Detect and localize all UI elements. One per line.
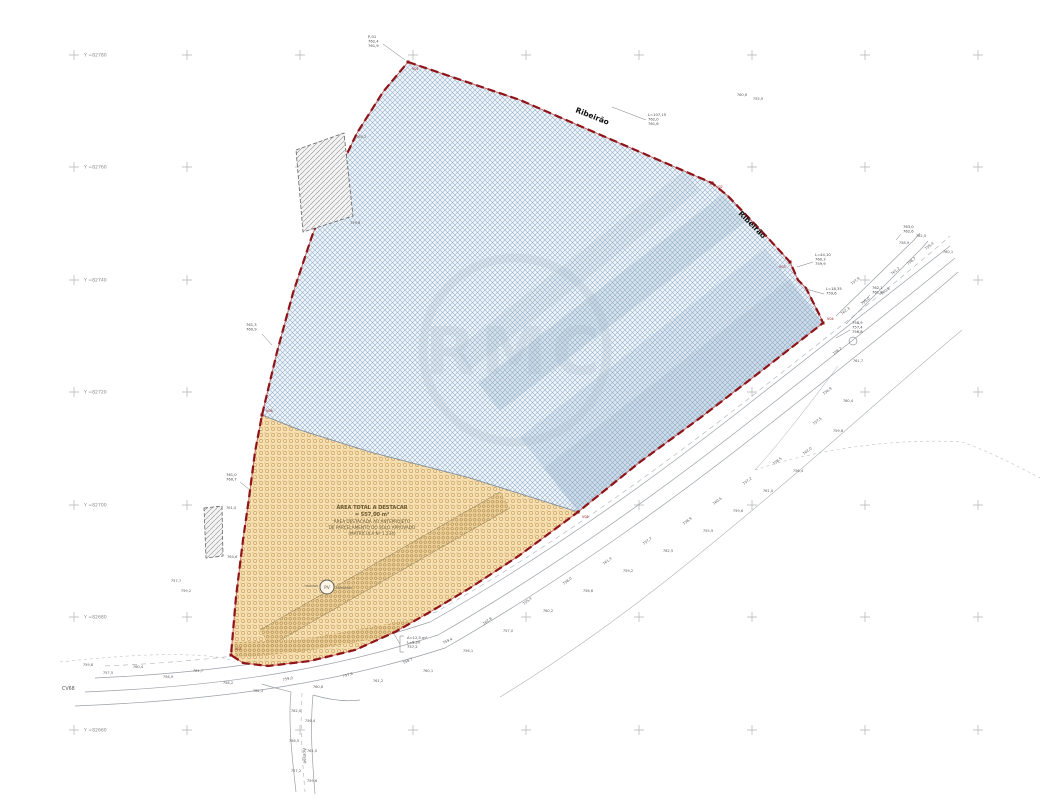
spot-elevation: 760,1 xyxy=(423,669,433,673)
spot-elevation: 758,7 xyxy=(402,657,413,665)
spot-elevation: 762,8 xyxy=(482,616,493,626)
spot-elevation: 760,4 xyxy=(843,399,854,403)
grid-cross xyxy=(69,500,79,510)
spot-elevation: 756,9 xyxy=(163,675,174,679)
grid-y-label: Y =82700 xyxy=(83,503,107,509)
leader-annotation-line: L=8,20 xyxy=(407,641,421,645)
grid-cross xyxy=(860,162,870,172)
spot-elevation: 757,2 xyxy=(291,769,301,773)
site-plan-drawing: Y =82780Y =82760Y =82740Y =82720Y =82700… xyxy=(0,0,1056,800)
spot-elevation: 758,5 xyxy=(772,456,783,465)
spot-elevation: 757,2 xyxy=(742,476,753,485)
grid-cross xyxy=(973,725,983,735)
grid-cross xyxy=(747,50,757,60)
leader-annotation-line: 760,3 xyxy=(815,258,826,262)
vertex-label: V04 xyxy=(827,317,834,321)
leader-annotation-line: 760,9 xyxy=(246,328,257,332)
spot-elevation: 756,4 xyxy=(305,719,316,723)
grid-cross xyxy=(634,612,644,622)
grid-y-label: Y =82720 xyxy=(83,390,107,396)
building-label: 761,0 xyxy=(226,506,237,510)
leader-annotation-line: 760,7 xyxy=(226,478,237,482)
spot-elevation: 760,8 xyxy=(313,685,324,689)
leader-annotation-line: 757,4 xyxy=(852,326,863,330)
grid-cross xyxy=(182,162,192,172)
spot-elevation: 755,9 xyxy=(703,529,714,533)
grid-cross xyxy=(182,500,192,510)
spot-elevation: 761,2 xyxy=(373,679,383,683)
leader-annotation-line: 758,9 xyxy=(852,321,863,325)
spot-elevation: 757,9 xyxy=(342,672,354,679)
spot-elevation: 757,7 xyxy=(642,536,653,545)
grid-cross xyxy=(747,612,757,622)
leader-annotation-line: A=12,5 m² xyxy=(407,636,428,640)
grid-y-label: Y =82740 xyxy=(83,278,107,284)
spot-elevation: 762,3 xyxy=(253,689,263,693)
spot-elevation: 756,4 xyxy=(793,469,804,473)
vertex-marker xyxy=(711,182,714,185)
leader-annotation-line: L=44,10 xyxy=(815,253,831,257)
grid-cross xyxy=(182,50,192,60)
grid-cross xyxy=(973,275,983,285)
grid-cross xyxy=(69,275,79,285)
access-road-centerline xyxy=(301,693,305,792)
spot-elevation: 758,5 xyxy=(289,739,299,743)
vertex-label: V05 xyxy=(582,515,589,519)
spot-elevation: 760,6 xyxy=(737,93,748,97)
spot-elevation: 755,9 xyxy=(753,97,764,101)
spot-elevation: 758,9 xyxy=(682,516,693,526)
leader-annotation-line: 759,6 xyxy=(826,292,837,296)
building-footprint xyxy=(296,133,353,232)
vertex-label: V07 xyxy=(235,647,242,651)
spot-elevation: 761,0 xyxy=(763,489,774,493)
grid-cross xyxy=(69,725,79,735)
spot-elevation: 756,6 xyxy=(583,589,594,593)
grid-y-label: Y =82660 xyxy=(83,728,107,734)
grid-cross xyxy=(521,50,531,60)
grid-cross xyxy=(182,387,192,397)
leader-annotation-line: 761,0 xyxy=(226,473,237,477)
grid-cross xyxy=(973,500,983,510)
grid-cross xyxy=(521,725,531,735)
spot-elevation: 758,2 xyxy=(223,681,233,685)
spot-elevation: 758,9 xyxy=(899,241,910,245)
grid-cross xyxy=(182,612,192,622)
grid-cross xyxy=(860,500,870,510)
grid-y-label: Y =82780 xyxy=(83,53,107,59)
leader-annotation-line: 763,0 xyxy=(903,225,914,229)
spot-elevation: 761,4 xyxy=(602,556,613,566)
spot-elevation: 761,0 xyxy=(307,749,318,753)
vertex-marker xyxy=(577,511,580,514)
leader-annotation-line: L=107,15 xyxy=(648,113,667,117)
spot-elevation: 761,7 xyxy=(193,669,203,673)
grid-cross xyxy=(295,725,305,735)
street-label-top: Ribeirão xyxy=(574,105,610,126)
spot-elevation: 759,0 xyxy=(282,676,294,682)
grid-cross xyxy=(973,50,983,60)
area-note-line: ÁREA TOTAL A DESTACAR xyxy=(336,504,407,511)
spot-elevation: 759,8 xyxy=(833,429,844,433)
spot-elevation: 761,7 xyxy=(853,359,863,363)
grid-cross xyxy=(634,725,644,735)
road-fork-connector xyxy=(262,684,360,701)
spot-elevation: 762,3 xyxy=(840,306,851,315)
grid-cross xyxy=(69,387,79,397)
spot-elevation: 759,6 xyxy=(733,509,744,513)
grid-cross xyxy=(860,612,870,622)
vertex-marker xyxy=(230,654,233,657)
grid-cross xyxy=(69,162,79,172)
vertex-marker xyxy=(822,322,825,325)
spot-elevation: 760,2 xyxy=(543,609,553,613)
vertex-marker xyxy=(789,261,792,264)
spot-elevation: 762,0 xyxy=(291,709,302,713)
grid-cross xyxy=(69,50,79,60)
spot-elevation: 758,2 xyxy=(832,346,843,355)
leader-annotation-line: P-01 xyxy=(368,35,376,39)
grid-cross xyxy=(521,612,531,622)
grid-cross xyxy=(182,275,192,285)
leader-annotation-line: 762,1 xyxy=(872,286,883,290)
narrow-road-edge xyxy=(836,233,928,324)
grid-cross xyxy=(747,387,757,397)
grid-cross xyxy=(69,612,79,622)
grid-cross xyxy=(973,387,983,397)
leader-annotation-line: L=18,35 xyxy=(826,287,842,291)
grid-cross xyxy=(973,612,983,622)
grid-cross xyxy=(747,162,757,172)
area-note-line: DE PARCELAMENTO DO SOLO APROVADO xyxy=(329,525,416,530)
grid-cross xyxy=(860,387,870,397)
grid-cross xyxy=(973,162,983,172)
vertex-marker xyxy=(261,414,264,417)
spot-elevation: 762,0 xyxy=(802,446,813,456)
spot-elevation: 757,7 xyxy=(171,579,181,583)
spot-elevation: 759,2 xyxy=(623,569,633,573)
spot-elevation: 758,7 xyxy=(906,256,917,265)
spot-elevation: 756,9 xyxy=(822,386,833,396)
spot-elevation: 757,5 xyxy=(103,671,113,675)
vertex-marker xyxy=(407,61,410,64)
building-footprint xyxy=(204,506,223,558)
leader-annotation-line: 762,0 xyxy=(648,118,659,122)
spot-elevation: 757,0 xyxy=(503,629,514,633)
grid-y-label: Y =82760 xyxy=(83,165,107,171)
grid-cross xyxy=(295,50,305,60)
building-label: 759,8 xyxy=(350,221,361,225)
grid-cross xyxy=(747,500,757,510)
spot-elevation: 758,0 xyxy=(562,576,573,586)
leader-annotation-line: 761,9 xyxy=(368,44,379,48)
spot-elevation: 757,5 xyxy=(812,416,823,425)
spot-elevation: 756,1 xyxy=(463,649,473,653)
area-note-line: ÁREA DESTACADA AO ANTEPROJETO xyxy=(334,519,411,524)
site-plan-svg: Y =82780Y =82760Y =82740Y =82720Y =82700… xyxy=(0,0,1056,800)
grid-y-label: Y =82680 xyxy=(83,615,107,621)
spot-elevation: 759,8 xyxy=(83,663,94,667)
building-label: 760,2 xyxy=(356,135,366,139)
grid-cross xyxy=(408,50,418,60)
spot-elevation: 759,2 xyxy=(181,589,191,593)
spot-elevation: 762,5 xyxy=(916,234,926,238)
grid-cross xyxy=(408,725,418,735)
leader-annotation-line: 761,6 xyxy=(648,122,659,126)
spot-elevation: 755,4 xyxy=(522,596,533,606)
spot-elevation: 759,6 xyxy=(307,779,318,783)
spot-elevation: 762,5 xyxy=(663,549,673,553)
cv-label: CV68 xyxy=(62,686,75,692)
manhole-label: PV xyxy=(324,585,330,590)
spot-elevation: 760,1 xyxy=(943,250,953,254)
vertex-label: V06 xyxy=(266,409,273,413)
leader-annotation-line: 762,4 xyxy=(368,40,379,44)
spot-elevation: 760,4 xyxy=(133,665,144,669)
spot-elevation: 760,6 xyxy=(712,496,723,506)
building-label: 760,6 xyxy=(227,555,238,559)
leader-annotation-line: 759,9 xyxy=(815,262,826,266)
spot-elevation: 759,4 xyxy=(924,241,935,251)
grid-cross xyxy=(860,275,870,285)
area-note-line: = 557,00 m² xyxy=(355,512,389,518)
grid-cross xyxy=(860,50,870,60)
leader-annotation-line: 762,6 xyxy=(903,230,914,234)
vertex-label: V02 xyxy=(716,185,723,189)
grid-cross xyxy=(860,725,870,735)
grid-cross xyxy=(634,500,644,510)
spot-elevation: 757,9 xyxy=(850,276,861,286)
leader-annotation-line: 757,2 xyxy=(407,645,418,649)
vertex-label: V01 xyxy=(412,67,419,71)
area-note-line: (MATRÍCULA Nº 1.234) xyxy=(348,531,396,536)
vertex-label: V03 xyxy=(779,265,786,269)
leader-annotation-line: 756,8 xyxy=(852,330,863,334)
leader-annotation-line: 761,3 xyxy=(246,323,257,327)
grid-cross xyxy=(182,725,192,735)
grid-cross xyxy=(747,725,757,735)
grid-cross xyxy=(634,50,644,60)
